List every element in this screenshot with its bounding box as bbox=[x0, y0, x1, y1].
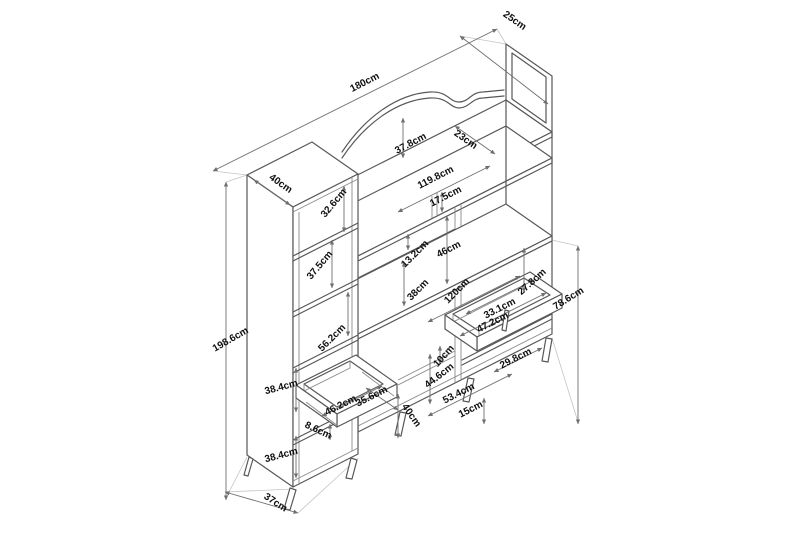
cabinet-side-face bbox=[247, 175, 293, 487]
dimension-label: 37cm bbox=[262, 491, 290, 514]
dimension-label: 25cm bbox=[501, 9, 528, 33]
furniture-leg bbox=[542, 338, 552, 362]
technical-drawing-page: 25cm180cm40cm37.8cm23cm119.8cm17.5cm32.6… bbox=[0, 0, 800, 533]
dimension-label: 78.6cm bbox=[551, 285, 586, 312]
furniture-leg bbox=[395, 412, 406, 436]
furniture-leg bbox=[346, 458, 357, 479]
dimension-label: 15cm bbox=[457, 399, 485, 420]
dimension-label: 180cm bbox=[348, 71, 381, 95]
dimension-label: 198.6cm bbox=[211, 325, 251, 354]
furniture-dimension-drawing: 25cm180cm40cm37.8cm23cm119.8cm17.5cm32.6… bbox=[0, 0, 800, 533]
